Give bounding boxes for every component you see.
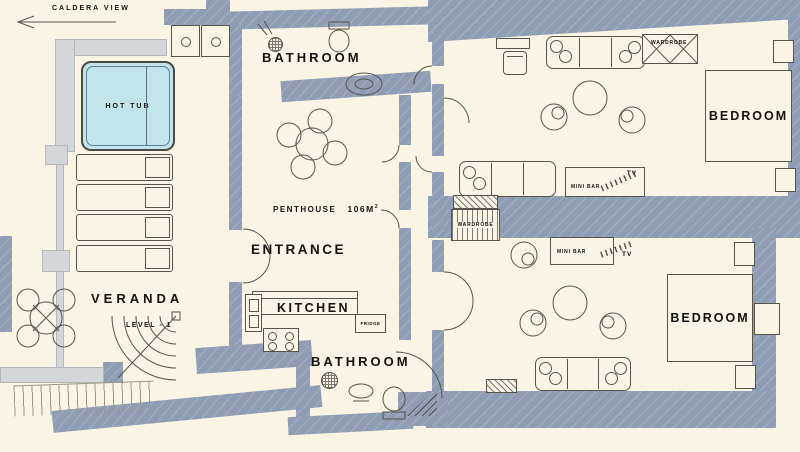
sink-basin [211, 37, 221, 47]
entrance-label: ENTRANCE [251, 242, 346, 257]
sofa-divider [598, 359, 599, 389]
sofa [535, 357, 631, 391]
bathroom-bottom-label: BATHROOM [311, 354, 411, 369]
counter-edge [253, 298, 357, 299]
armchair [520, 310, 546, 336]
wall [103, 362, 123, 383]
desk-chair [503, 51, 527, 75]
tv-bottom-label: TV [622, 251, 632, 258]
hot-tub: HOT TUB [81, 61, 175, 151]
wall [0, 236, 12, 332]
wall [426, 391, 776, 428]
sofa-cushion [619, 50, 632, 63]
sofa-cushion [549, 372, 562, 385]
bedroom-top-label: BEDROOM [709, 109, 788, 123]
bedroom-bottom-label: BEDROOM [670, 311, 749, 325]
sink-bowl [249, 299, 259, 312]
mini-bar-top-label: MINI BAR [571, 184, 600, 190]
nightstand [735, 365, 756, 389]
wall [399, 162, 411, 210]
caldera-view-arrow [18, 16, 116, 28]
kitchen-sink [245, 294, 262, 332]
door-arc [381, 145, 399, 228]
wardrobe-top-label: WARDROBE [651, 40, 687, 46]
sink-bowl [249, 315, 259, 328]
wall-light [55, 39, 75, 152]
sun-lounger [76, 214, 173, 241]
desk [496, 38, 530, 49]
sofa-divider [579, 38, 580, 67]
nightstand [773, 40, 794, 63]
outdoor-sink [201, 25, 230, 57]
sofa-cushion [473, 177, 486, 190]
hot-tub-inner-rim [86, 66, 170, 146]
sofa-cushion [605, 372, 618, 385]
bathroom-top-label: BATHROOM [262, 50, 362, 65]
outdoor-sink [171, 25, 200, 57]
nightstand [734, 242, 755, 266]
kitchen-label: KITCHEN [277, 301, 350, 315]
sun-lounger [76, 184, 173, 211]
hot-tub-divider [146, 67, 147, 145]
sink-basin [181, 37, 191, 47]
sofa-divider [491, 163, 492, 195]
veranda-label: VERANDA [91, 291, 183, 306]
window-opening [754, 303, 780, 335]
sofa-cushion [559, 50, 572, 63]
sun-lounger [76, 154, 173, 181]
sofa-divider [567, 359, 568, 389]
wall [229, 282, 242, 346]
penthouse-label: PENTHOUSE 106M2 [273, 204, 379, 214]
penthouse-name: PENTHOUSE [273, 205, 336, 214]
wall [432, 240, 444, 272]
armchair [600, 313, 626, 339]
veranda-deck [14, 381, 155, 417]
fridge-label: FRIDGE [360, 321, 380, 326]
wall [206, 0, 230, 28]
armchair [511, 242, 537, 268]
lounger-pillow [145, 187, 170, 208]
dining-table [277, 109, 347, 179]
wall-light [0, 367, 104, 383]
wardrobe-rail: WARDROBE [451, 209, 500, 241]
bed: BEDROOM [667, 274, 753, 362]
shower-drain [321, 372, 338, 389]
wall [432, 330, 444, 392]
wardrobe-mid-label: WARDROBE [455, 222, 495, 228]
lounger-pillow [145, 157, 170, 178]
burner [285, 342, 294, 351]
burner [285, 332, 294, 341]
area-label: 106M2 [347, 204, 379, 214]
veranda-table [17, 289, 75, 347]
wardrobe-shelf [453, 195, 498, 209]
lounger-pillow [145, 248, 170, 269]
sun-lounger [76, 245, 173, 272]
mini-bar-bottom-label: MINI BAR [557, 249, 586, 255]
wall [432, 84, 444, 156]
chair-back-line [507, 56, 523, 57]
wardrobe: WARDROBE [642, 34, 698, 64]
burner [268, 342, 277, 351]
door-arc [444, 272, 473, 330]
coffee-table [553, 286, 587, 320]
sofa [546, 36, 645, 69]
wall [432, 172, 444, 238]
wall [229, 96, 242, 230]
wall [296, 346, 310, 424]
sofa-divider [523, 163, 524, 195]
fridge: FRIDGE [355, 314, 386, 333]
sofa [459, 161, 556, 197]
wall [399, 228, 411, 340]
bed: BEDROOM [705, 70, 792, 162]
wall [432, 32, 444, 66]
caldera-view-label: CALDERA VIEW [52, 5, 130, 12]
armchair [619, 107, 645, 133]
floor-plan: HOT TUB FRIDGE [0, 0, 800, 452]
wall-light [45, 145, 68, 165]
wall [399, 95, 411, 145]
sofa-divider [611, 38, 612, 67]
burner [268, 332, 277, 341]
armchair [541, 104, 567, 130]
wall [228, 6, 430, 29]
level-label: LEVEL - 1 [126, 322, 172, 329]
wall-light [42, 250, 70, 272]
wall [229, 24, 242, 98]
coffee-table [573, 81, 607, 115]
sofa-cushion [463, 166, 476, 179]
bathroom-bottom-sink [349, 384, 373, 401]
lounger-pillow [145, 217, 170, 238]
nightstand [775, 168, 796, 192]
bath-mat [486, 379, 517, 393]
stove [263, 328, 299, 352]
